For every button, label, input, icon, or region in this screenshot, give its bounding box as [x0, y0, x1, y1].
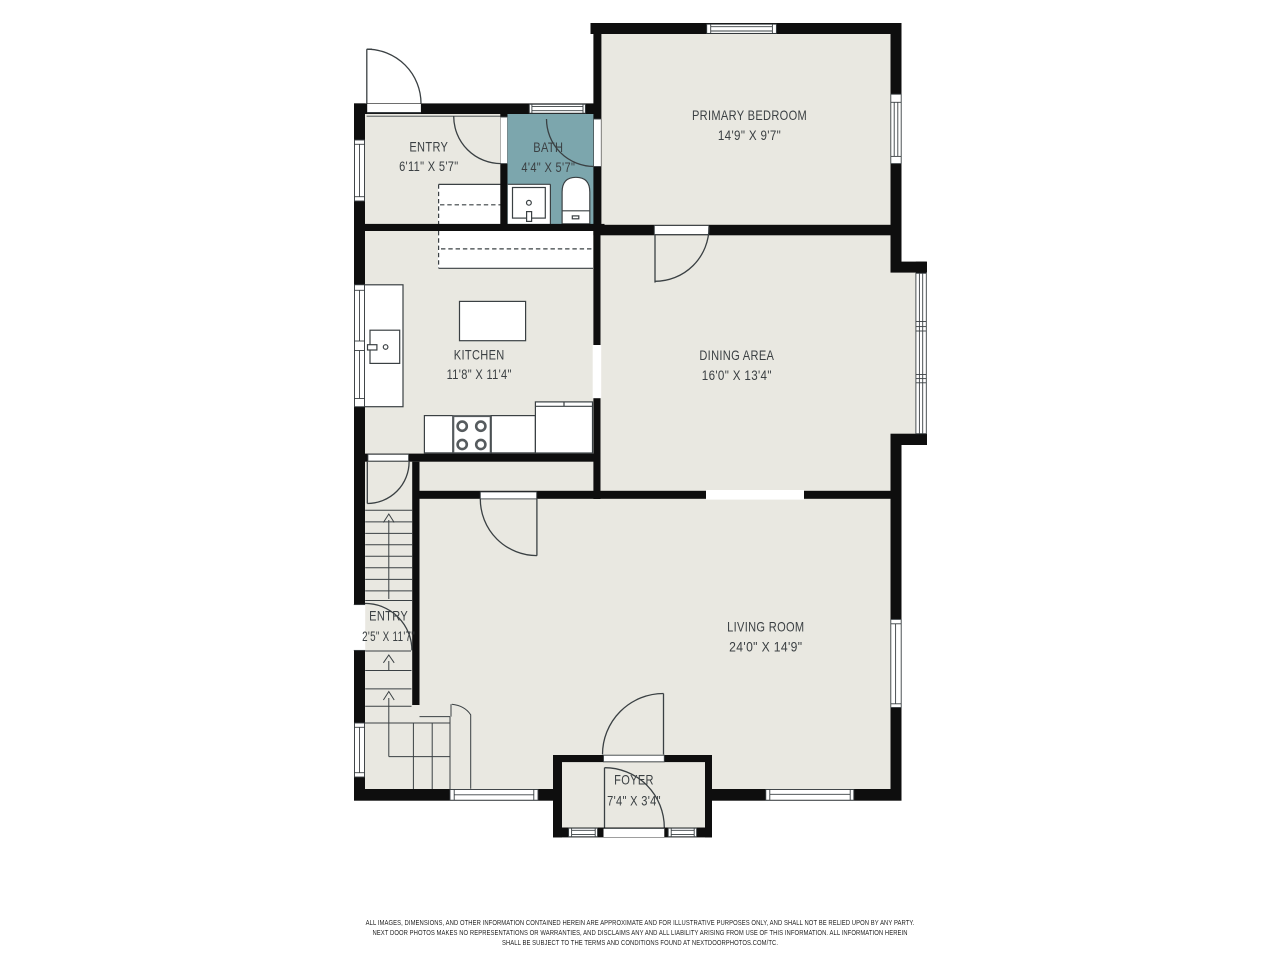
- svg-text:6'11" X 5'7": 6'11" X 5'7": [399, 159, 458, 174]
- svg-text:ENTRY: ENTRY: [369, 608, 408, 623]
- svg-text:NEXT DOOR PHOTOS MAKES NO REPR: NEXT DOOR PHOTOS MAKES NO REPRESENTATION…: [372, 929, 907, 937]
- svg-text:PRIMARY BEDROOM: PRIMARY BEDROOM: [692, 108, 807, 123]
- svg-text:2'5" X 11'7": 2'5" X 11'7": [362, 629, 415, 645]
- svg-text:14'9" X 9'7": 14'9" X 9'7": [718, 128, 781, 143]
- svg-text:ALL IMAGES, DIMENSIONS, AND OT: ALL IMAGES, DIMENSIONS, AND OTHER INFORM…: [366, 919, 915, 927]
- svg-text:4'4" X 5'7": 4'4" X 5'7": [521, 160, 575, 175]
- svg-text:FOYER: FOYER: [614, 772, 654, 787]
- svg-text:LIVING ROOM: LIVING ROOM: [727, 619, 804, 634]
- svg-text:24'0" X 14'9": 24'0" X 14'9": [729, 639, 802, 655]
- svg-text:DINING AREA: DINING AREA: [699, 348, 774, 363]
- svg-text:11'8" X 11'4": 11'8" X 11'4": [447, 367, 512, 382]
- svg-text:BATH: BATH: [533, 140, 563, 155]
- svg-text:16'0" X 13'4": 16'0" X 13'4": [702, 368, 772, 383]
- svg-text:ENTRY: ENTRY: [409, 139, 448, 154]
- svg-text:KITCHEN: KITCHEN: [454, 347, 505, 362]
- svg-text:SHALL BE SUBJECT TO THE TERMS: SHALL BE SUBJECT TO THE TERMS AND CONDIT…: [502, 939, 778, 947]
- svg-text:7'4" X 3'4": 7'4" X 3'4": [607, 794, 661, 809]
